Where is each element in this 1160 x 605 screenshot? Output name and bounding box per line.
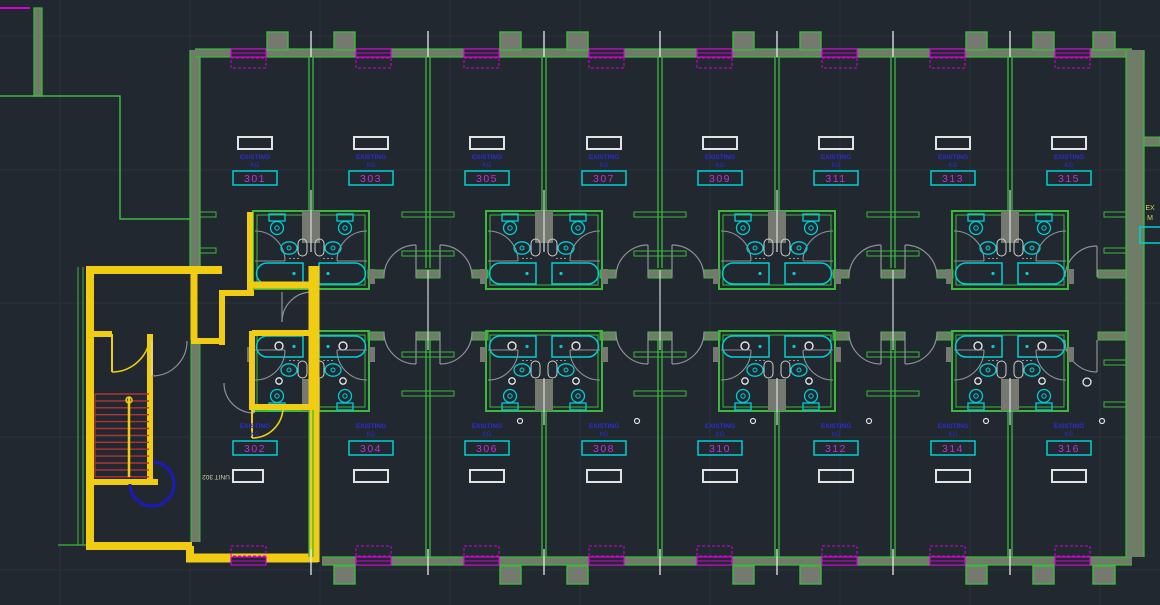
room-number: 312 <box>825 443 847 455</box>
room-label-308: EXISTINGKG308 <box>582 419 640 483</box>
room-number: 303 <box>360 173 382 185</box>
room-label-302: EXISTINGKG302UNIT 302 <box>202 423 277 482</box>
bathroom-pair-bottom <box>713 331 841 425</box>
bathroom-pair-top <box>713 190 841 289</box>
room-number: 306 <box>476 443 498 455</box>
svg-text:KG: KG <box>483 432 492 438</box>
svg-text:KG: KG <box>716 432 725 438</box>
room-label-309: EXISTINGKG309 <box>698 137 742 185</box>
room-number: 302 <box>244 443 266 455</box>
svg-text:KG: KG <box>949 432 958 438</box>
svg-text:KG: KG <box>949 163 958 169</box>
unit-type-text: EXISTING <box>472 154 502 161</box>
unit-type-text: EXISTING <box>821 154 851 161</box>
room-number: 316 <box>1058 443 1080 455</box>
room-label-314: EXISTINGKG314 <box>931 419 989 483</box>
room-number: 310 <box>709 443 731 455</box>
unit-type-text: EXISTING <box>240 154 270 161</box>
room-number: 308 <box>593 443 615 455</box>
svg-text:KG: KG <box>832 432 841 438</box>
edge-text: M <box>1147 215 1153 222</box>
unit-type-text: EXISTING <box>589 154 619 161</box>
cad-model-space[interactable]: EXISTINGKG301EXISTINGKG302UNIT 302EXISTI… <box>0 0 1160 605</box>
svg-text:KG: KG <box>600 432 609 438</box>
unit-type-text: EXISTING <box>1054 423 1084 430</box>
room-number: 309 <box>709 173 731 185</box>
room-label-301: EXISTINGKG301 <box>233 137 277 185</box>
svg-text:KG: KG <box>251 432 260 438</box>
unit-type-text: EXISTING <box>356 423 386 430</box>
unit-type-text: EXISTING <box>589 423 619 430</box>
room-label-303: EXISTINGKG303 <box>349 137 393 185</box>
room-label-316: EXISTINGKG316 <box>1047 419 1105 483</box>
room-number: 311 <box>825 173 846 185</box>
room-label-311: EXISTINGKG311 <box>814 137 858 185</box>
unit-type-text: EXISTING <box>240 423 270 430</box>
bathroom-pair-top <box>946 190 1074 289</box>
room-label-307: EXISTINGKG307 <box>582 137 626 185</box>
corridor-walls-and-doors <box>282 245 1126 386</box>
svg-text:KG: KG <box>367 432 376 438</box>
svg-text:KG: KG <box>600 163 609 169</box>
unit-type-text: EXISTING <box>1054 154 1084 161</box>
svg-text:KG: KG <box>483 163 492 169</box>
room-label-313: EXISTINGKG313 <box>931 137 975 185</box>
unit-type-text: EXISTING <box>938 423 968 430</box>
room-label-310: EXISTINGKG310 <box>698 419 756 483</box>
bathroom-pair-bottom <box>480 331 608 425</box>
grid-lines <box>0 0 1160 605</box>
bathroom-pair-bottom <box>946 331 1074 425</box>
room-number: 305 <box>476 173 498 185</box>
svg-text:KG: KG <box>1065 163 1074 169</box>
floorplan-drawing[interactable]: EXISTINGKG301EXISTINGKG302UNIT 302EXISTI… <box>0 0 1160 605</box>
unit-type-text: EXISTING <box>821 423 851 430</box>
interior-doors <box>152 341 254 413</box>
stair-treads <box>95 394 149 477</box>
room-label-312: EXISTINGKG312 <box>814 419 872 483</box>
room-label-305: EXISTINGKG305 <box>465 137 509 185</box>
svg-text:KG: KG <box>716 163 725 169</box>
room-number: 304 <box>360 443 382 455</box>
svg-text:KG: KG <box>1065 432 1074 438</box>
room-label-306: EXISTINGKG306 <box>465 419 523 483</box>
room-number: 315 <box>1058 173 1080 185</box>
unit-type-text: EXISTING <box>705 423 735 430</box>
exterior-wall-bottom <box>231 546 1132 584</box>
unit-type-text: EXISTING <box>705 154 735 161</box>
left-exterior-walls <box>0 8 216 545</box>
unit-type-text: EXISTING <box>472 423 502 430</box>
exterior-wall-top <box>195 32 1132 68</box>
bathroom-pair-top <box>480 190 608 289</box>
unit-type-text: EXISTING <box>356 154 386 161</box>
room-label-304: EXISTINGKG304 <box>349 423 393 482</box>
unit-type-text: EXISTING <box>938 154 968 161</box>
room-number: 307 <box>593 173 615 185</box>
room-label-315: EXISTINGKG315 <box>1047 137 1091 185</box>
room-number: 314 <box>942 443 964 455</box>
mirrored-unit-annotation: UNIT 302 <box>202 473 230 480</box>
room-number: 313 <box>942 173 964 185</box>
svg-text:KG: KG <box>832 163 841 169</box>
svg-text:KG: KG <box>251 163 260 169</box>
room-number: 301 <box>244 173 266 185</box>
svg-text:KG: KG <box>367 163 376 169</box>
edge-text: EX <box>1145 205 1155 212</box>
